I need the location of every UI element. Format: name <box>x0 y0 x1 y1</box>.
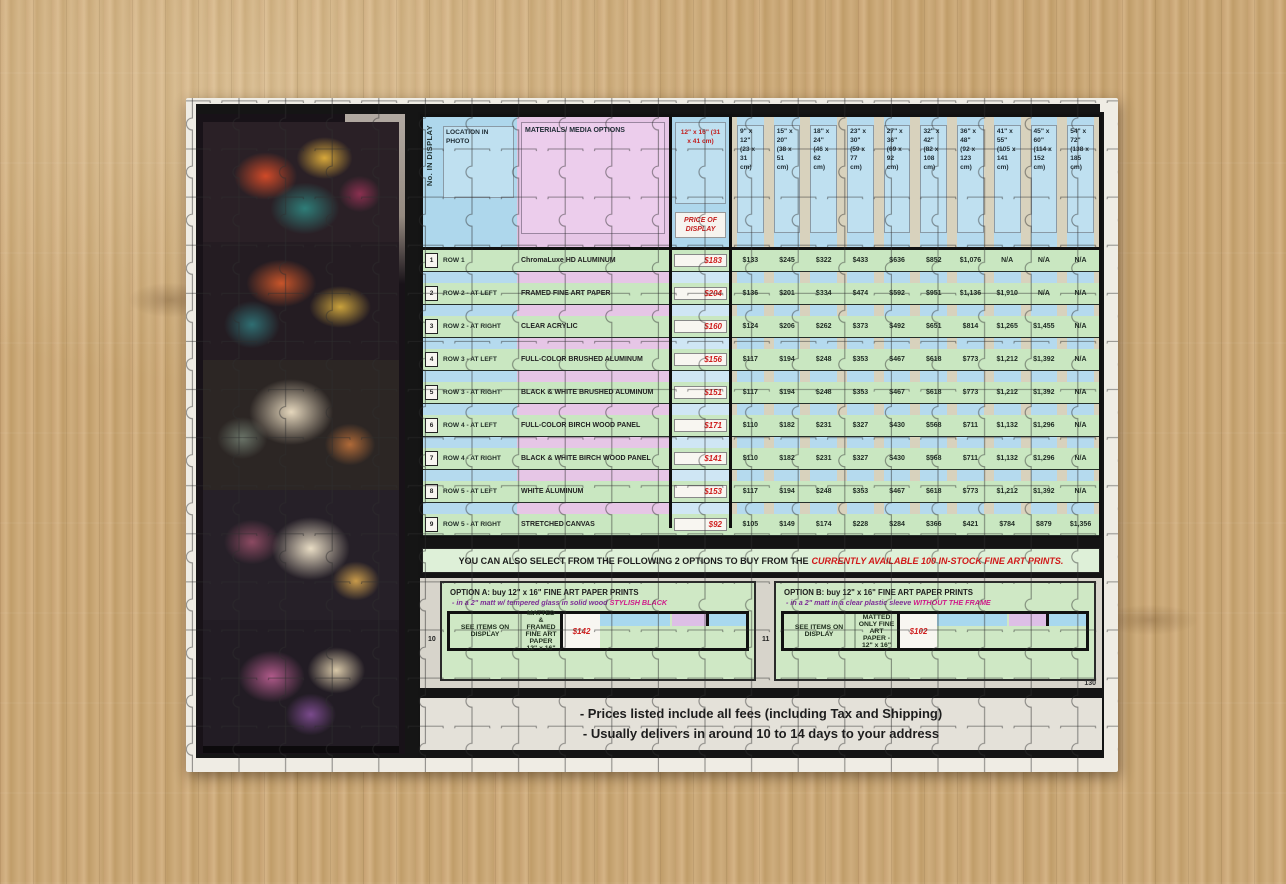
row-number: 9 <box>423 517 440 532</box>
table-row: 4 ROW 3 - AT LEFT FULL-COLOR BRUSHED ALU… <box>423 349 1099 371</box>
size-label: 9" x 12" (23 x 31 cm) <box>737 125 764 233</box>
location-header-label: LOCATION IN PHOTO <box>443 126 514 198</box>
table-row: 7 ROW 4 - AT RIGHT BLACK & WHITE BIRCH W… <box>423 448 1099 470</box>
row-number: 3 <box>423 319 440 334</box>
spacer-row <box>423 470 1099 481</box>
banner-highlight: CURRENTLY AVAILABLE 100 IN-STOCK FINE AR… <box>811 556 1063 566</box>
spacer-row <box>423 371 1099 382</box>
size-column-header: 41" x 55" (105 x 141 cm) <box>989 117 1026 247</box>
size-label: 15" x 20" (38 x 51 cm) <box>774 125 801 233</box>
price-cell: $1,455 <box>1026 323 1063 330</box>
price-cell: N/A <box>1026 257 1063 264</box>
price-cell: $1,212 <box>989 389 1026 396</box>
price-cell: $467 <box>879 488 916 495</box>
price-of-display-label: PRICE OF DISPLAY <box>675 212 726 238</box>
option-a-subtitle: - in a 2" matt w/ tempered glass in soli… <box>442 598 754 610</box>
price-cell: $1,132 <box>989 422 1026 429</box>
page-number: 130 <box>1084 680 1096 687</box>
option-a-description-cell: MATTED & FRAMED FINE ART PAPER 12" x 16" <box>522 614 560 648</box>
price-cell: $133 <box>732 257 769 264</box>
table-row: 8 ROW 5 - AT LEFT WHITE ALUMINUM $153 $1… <box>423 481 1099 503</box>
row-number-label: 3 <box>425 319 438 334</box>
row-location: ROW 2 - AT RIGHT <box>440 323 517 330</box>
price-cell: N/A <box>1062 356 1099 363</box>
price-cell: $1,132 <box>989 455 1026 462</box>
art-shelf <box>203 242 399 367</box>
row-display-price: $151 <box>672 386 729 399</box>
price-cell: $322 <box>805 257 842 264</box>
price-cell: $105 <box>732 521 769 528</box>
row-number-label: 9 <box>425 517 438 532</box>
price-cell: $773 <box>952 389 989 396</box>
row-number-label: 4 <box>425 352 438 367</box>
price-cell: $492 <box>879 323 916 330</box>
strip <box>706 614 746 626</box>
row-location: ROW 4 - AT LEFT <box>440 422 517 429</box>
note-line-1: - Prices listed include all fees (includ… <box>580 704 942 724</box>
price-cell: $852 <box>915 257 952 264</box>
price-cell: $284 <box>879 521 916 528</box>
banner-text: YOU CAN ALSO SELECT FROM THE FOLLOWING 2… <box>459 556 809 566</box>
art-shelf <box>203 360 399 497</box>
table-row: 9 ROW 5 - AT RIGHT STRETCHED CANVAS $92 … <box>423 514 1099 536</box>
price-cell: $117 <box>732 389 769 396</box>
price-cell: $353 <box>842 356 879 363</box>
display-price-value: $171 <box>674 419 727 432</box>
price-cell: $1,265 <box>989 323 1026 330</box>
option-b-price: $102 <box>897 614 937 648</box>
price-cell: $366 <box>915 521 952 528</box>
price-cell: $568 <box>915 455 952 462</box>
row-number: 8 <box>423 484 440 499</box>
note-line-2: - Usually delivers in around 10 to 14 da… <box>583 724 939 744</box>
price-cell: $636 <box>879 257 916 264</box>
price-cell: $117 <box>732 356 769 363</box>
price-cell: $248 <box>805 356 842 363</box>
see-items-cell: SEE ITEMS ON DISPLAY <box>784 614 856 648</box>
price-cell: $206 <box>769 323 806 330</box>
display-price-value: $153 <box>674 485 727 498</box>
price-cell: $174 <box>805 521 842 528</box>
location-header: LOCATION IN PHOTO <box>440 117 517 247</box>
price-cell: $1,212 <box>989 356 1026 363</box>
spacer-row <box>423 404 1099 415</box>
price-cell: $231 <box>805 455 842 462</box>
price-cell: $711 <box>952 455 989 462</box>
price-cell: $1,296 <box>1026 422 1063 429</box>
row-material: CLEAR ACRYLIC <box>517 323 669 330</box>
price-cell: $430 <box>879 422 916 429</box>
size-column-header: 27" x 36" (69 x 92 cm) <box>879 117 916 247</box>
display-size-label: 12" x 16" (31 x 41 cm) <box>675 122 726 204</box>
row-number-label: 8 <box>425 484 438 499</box>
see-items-cell: SEE ITEMS ON DISPLAY <box>450 614 522 648</box>
price-cell: $1,392 <box>1026 356 1063 363</box>
row-location: ROW 3 - AT LEFT <box>440 356 517 363</box>
jigsaw-puzzle: No. IN DISPLAY LOCATION IN PHOTO MATERIA… <box>186 98 1118 772</box>
price-cell: $334 <box>805 290 842 297</box>
price-cell: $136 <box>732 290 769 297</box>
size-label: 27" x 36" (69 x 92 cm) <box>884 125 911 233</box>
price-cell: N/A <box>1062 455 1099 462</box>
price-cell: $433 <box>842 257 879 264</box>
strip <box>672 614 706 626</box>
table-divider <box>729 117 732 528</box>
price-cell: $194 <box>769 356 806 363</box>
option-b-number: 11 <box>762 636 769 643</box>
table-header: No. IN DISPLAY LOCATION IN PHOTO MATERIA… <box>423 117 1099 250</box>
row-display-price: $92 <box>672 518 729 531</box>
price-cell: $618 <box>915 488 952 495</box>
price-cell: $201 <box>769 290 806 297</box>
price-cell: $568 <box>915 422 952 429</box>
spacer-row <box>423 272 1099 283</box>
size-column-header: 23" x 30" (59 x 77 cm) <box>842 117 879 247</box>
option-a-title: OPTION A: buy 12" x 16" FINE ART PAPER P… <box>442 583 754 598</box>
price-cell: $182 <box>769 422 806 429</box>
row-number-label: 5 <box>425 385 438 400</box>
row-location: ROW 3 - AT RIGHT <box>440 389 517 396</box>
size-label: 41" x 55" (105 x 141 cm) <box>994 125 1021 233</box>
price-cell: $353 <box>842 389 879 396</box>
price-cell: $474 <box>842 290 879 297</box>
corner-header-label: No. IN DISPLAY <box>425 125 434 186</box>
price-cell: N/A <box>1062 389 1099 396</box>
price-cell: $245 <box>769 257 806 264</box>
price-cell: $1,296 <box>1026 455 1063 462</box>
row-material: FRAMED FINE ART PAPER <box>517 290 669 297</box>
option-b-table: SEE ITEMS ON DISPLAY MATTED ONLY FINE AR… <box>781 611 1089 651</box>
price-cell: $228 <box>842 521 879 528</box>
price-cell: $110 <box>732 455 769 462</box>
price-cell: $1,076 <box>952 257 989 264</box>
row-number: 5 <box>423 385 440 400</box>
row-number: 4 <box>423 352 440 367</box>
price-cell: N/A <box>1062 290 1099 297</box>
size-column-header: 15" x 20" (38 x 51 cm) <box>769 117 806 247</box>
price-cell: $618 <box>915 389 952 396</box>
table-divider <box>669 117 672 528</box>
row-location: ROW 2 - AT LEFT <box>440 290 517 297</box>
strip <box>600 614 672 626</box>
option-a-box: OPTION A: buy 12" x 16" FINE ART PAPER P… <box>440 581 756 681</box>
options-banner: YOU CAN ALSO SELECT FROM THE FOLLOWING 2… <box>422 548 1100 573</box>
size-label: 54" x 72" (138 x 185 cm) <box>1067 125 1094 233</box>
row-display-price: $153 <box>672 485 729 498</box>
art-shelf <box>203 122 399 249</box>
size-column-header: 45" x 60" (114 x 152 cm) <box>1026 117 1063 247</box>
option-b-subtitle-text: - in a 2" matt in a clear plastic sleeve <box>786 598 913 607</box>
options-section: 10 OPTION A: buy 12" x 16" FINE ART PAPE… <box>420 578 1102 688</box>
size-label: 18" x 24" (46 x 62 cm) <box>810 125 837 233</box>
price-cell: $1,392 <box>1026 389 1063 396</box>
option-a-number: 10 <box>428 636 436 643</box>
table-row: 3 ROW 2 - AT RIGHT CLEAR ACRYLIC $160 $1… <box>423 316 1099 338</box>
row-number: 2 <box>423 286 440 301</box>
display-price-header: 12" x 16" (31 x 41 cm) PRICE OF DISPLAY <box>672 117 729 247</box>
price-cell: $117 <box>732 488 769 495</box>
price-cell: $651 <box>915 323 952 330</box>
price-cell: N/A <box>1062 257 1099 264</box>
display-price-value: $141 <box>674 452 727 465</box>
table-row: 6 ROW 4 - AT LEFT FULL-COLOR BIRCH WOOD … <box>423 415 1099 437</box>
row-number: 6 <box>423 418 440 433</box>
price-cell: N/A <box>1062 488 1099 495</box>
spacer-row <box>423 338 1099 349</box>
price-cell: $327 <box>842 455 879 462</box>
row-location: ROW 5 - AT LEFT <box>440 488 517 495</box>
price-cell: $124 <box>732 323 769 330</box>
price-cell: $262 <box>805 323 842 330</box>
price-cell: $1,136 <box>952 290 989 297</box>
price-cell: $1,356 <box>1062 521 1099 528</box>
pricing-panel: No. IN DISPLAY LOCATION IN PHOTO MATERIA… <box>418 112 1104 758</box>
row-display-price: $160 <box>672 320 729 333</box>
spacer-row <box>423 437 1099 448</box>
option-a-subtitle-highlight: STYLISH BLACK <box>610 598 668 607</box>
spacer-row <box>423 305 1099 316</box>
art-shelf <box>203 490 399 627</box>
row-location: ROW 4 - AT RIGHT <box>440 455 517 462</box>
row-material: WHITE ALUMINUM <box>517 488 669 495</box>
size-column-header: 36" x 48" (92 x 123 cm) <box>952 117 989 247</box>
option-a-subtitle-text: - in a 2" matt w/ tempered glass in soli… <box>452 598 610 607</box>
row-number: 7 <box>423 451 440 466</box>
display-price-value: $92 <box>674 518 727 531</box>
price-cell: $194 <box>769 389 806 396</box>
row-number-label: 6 <box>425 418 438 433</box>
table-row: 5 ROW 3 - AT RIGHT BLACK & WHITE BRUSHED… <box>423 382 1099 404</box>
size-column-header: 18" x 24" (46 x 62 cm) <box>805 117 842 247</box>
price-cell: $618 <box>915 356 952 363</box>
price-cell: N/A <box>1062 422 1099 429</box>
row-number-label: 1 <box>425 253 438 268</box>
row-material: FULL-COLOR BRUSHED ALUMINUM <box>517 356 669 363</box>
price-cell: $773 <box>952 488 989 495</box>
price-cell: $194 <box>769 488 806 495</box>
size-label: 32" x 42" (82 x 108 cm) <box>920 125 947 233</box>
price-cell: $1,392 <box>1026 488 1063 495</box>
price-cell: $231 <box>805 422 842 429</box>
price-cell: $1,910 <box>989 290 1026 297</box>
display-price-value: $183 <box>674 254 727 267</box>
materials-header: MATERIALS/ MEDIA OPTIONS <box>517 117 669 247</box>
table-row: 1 ROW 1 ChromaLuxe HD ALUMINUM $183 $133… <box>423 250 1099 272</box>
corner-header: No. IN DISPLAY <box>423 117 440 247</box>
price-cell: $467 <box>879 389 916 396</box>
price-cell: $353 <box>842 488 879 495</box>
option-b-title: OPTION B: buy 12" x 16" FINE ART PAPER P… <box>776 583 1094 598</box>
option-b-subtitle: - in a 2" matt in a clear plastic sleeve… <box>776 598 1094 610</box>
price-cell: $110 <box>732 422 769 429</box>
size-label: 36" x 48" (92 x 123 cm) <box>957 125 984 233</box>
table-row: 2 ROW 2 - AT LEFT FRAMED FINE ART PAPER … <box>423 283 1099 305</box>
option-b-subtitle-highlight: WITHOUT THE FRAME <box>913 598 990 607</box>
price-cell: $182 <box>769 455 806 462</box>
price-cell: $773 <box>952 356 989 363</box>
price-cell: $1,212 <box>989 488 1026 495</box>
price-cell: $592 <box>879 290 916 297</box>
size-label: 45" x 60" (114 x 152 cm) <box>1031 125 1058 233</box>
row-material: BLACK & WHITE BRUSHED ALUMINUM <box>517 389 669 396</box>
price-cell: $421 <box>952 521 989 528</box>
row-display-price: $156 <box>672 353 729 366</box>
price-cell: $951 <box>915 290 952 297</box>
row-material: STRETCHED CANVAS <box>517 521 669 528</box>
scene: No. IN DISPLAY LOCATION IN PHOTO MATERIA… <box>0 0 1286 884</box>
price-cell: N/A <box>1062 323 1099 330</box>
option-b-description-cell: MATTED ONLY FINE ART PAPER - 12" x 16" <box>856 614 897 648</box>
art-shelf <box>203 620 399 753</box>
display-price-value: $160 <box>674 320 727 333</box>
row-material: FULL-COLOR BIRCH WOOD PANEL <box>517 422 669 429</box>
option-b-box: OPTION B: buy 12" x 16" FINE ART PAPER P… <box>774 581 1096 681</box>
price-table: No. IN DISPLAY LOCATION IN PHOTO MATERIA… <box>420 114 1102 538</box>
price-cell: $248 <box>805 389 842 396</box>
display-price-value: $151 <box>674 386 727 399</box>
price-cell: $430 <box>879 455 916 462</box>
size-column-header: 54" x 72" (138 x 185 cm) <box>1062 117 1099 247</box>
price-cell: $467 <box>879 356 916 363</box>
row-display-price: $141 <box>672 452 729 465</box>
row-display-price: $171 <box>672 419 729 432</box>
size-column-header: 9" x 12" (23 x 31 cm) <box>732 117 769 247</box>
price-cell: $248 <box>805 488 842 495</box>
strip <box>1046 614 1086 626</box>
display-price-value: $156 <box>674 353 727 366</box>
row-material: BLACK & WHITE BIRCH WOOD PANEL <box>517 455 669 462</box>
display-price-value: $204 <box>674 287 727 300</box>
row-display-price: $204 <box>672 287 729 300</box>
materials-header-label: MATERIALS/ MEDIA OPTIONS <box>521 122 665 234</box>
option-a-price: $142 <box>560 614 600 648</box>
puzzle-printed-image: No. IN DISPLAY LOCATION IN PHOTO MATERIA… <box>196 104 1100 758</box>
price-cell: $327 <box>842 422 879 429</box>
price-cell: $814 <box>952 323 989 330</box>
spacer-row <box>423 503 1099 514</box>
row-location: ROW 5 - AT RIGHT <box>440 521 517 528</box>
price-cell: $373 <box>842 323 879 330</box>
size-column-header: 32" x 42" (82 x 108 cm) <box>915 117 952 247</box>
size-label: 23" x 30" (59 x 77 cm) <box>847 125 874 233</box>
display-rack-photo <box>197 114 405 754</box>
strip <box>937 614 1009 626</box>
option-a-table: SEE ITEMS ON DISPLAY MATTED & FRAMED FIN… <box>447 611 749 651</box>
price-cell: $149 <box>769 521 806 528</box>
price-cell: $879 <box>1026 521 1063 528</box>
row-number-label: 7 <box>425 451 438 466</box>
notes-section: - Prices listed include all fees (includ… <box>420 698 1102 750</box>
row-display-price: $183 <box>672 254 729 267</box>
row-number: 1 <box>423 253 440 268</box>
row-number-label: 2 <box>425 286 438 301</box>
row-material: ChromaLuxe HD ALUMINUM <box>517 257 669 264</box>
row-location: ROW 1 <box>440 257 517 264</box>
price-cell: $784 <box>989 521 1026 528</box>
price-cell: $711 <box>952 422 989 429</box>
price-cell: N/A <box>1026 290 1063 297</box>
price-cell: N/A <box>989 257 1026 264</box>
strip <box>1009 614 1046 626</box>
